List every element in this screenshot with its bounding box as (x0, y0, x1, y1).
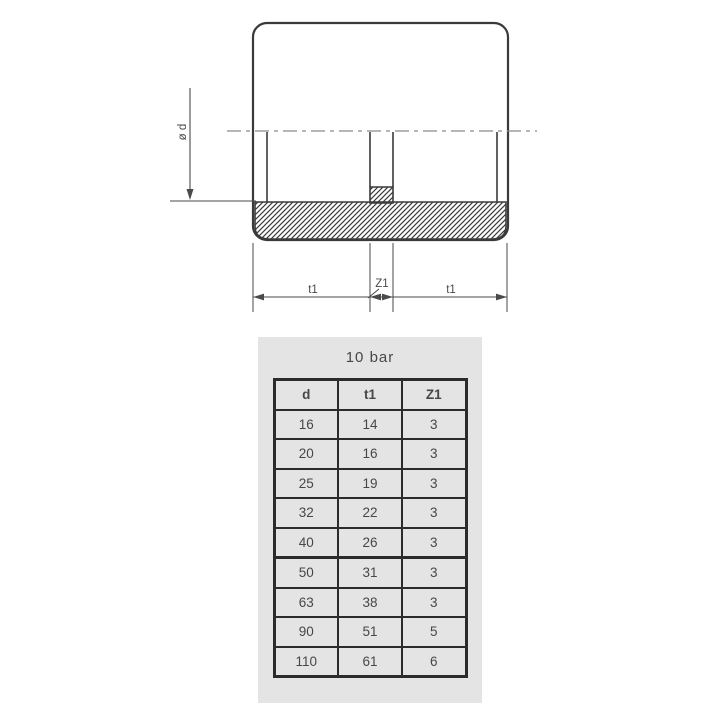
cell-z1: 3 (402, 528, 466, 558)
table-row: 20 16 3 (274, 439, 466, 469)
cell-z1: 6 (402, 647, 466, 677)
cell-d: 25 (274, 469, 338, 499)
cell-t1: 26 (338, 528, 402, 558)
cell-t1: 16 (338, 439, 402, 469)
diameter-dimension: ø d (170, 88, 256, 201)
cell-d: 90 (274, 617, 338, 647)
cell-t1: 31 (338, 558, 402, 588)
table-row: 50 31 3 (274, 558, 466, 588)
cell-t1: 61 (338, 647, 402, 677)
section-hatch-band (255, 202, 506, 239)
col-header-d: d (274, 380, 338, 410)
cell-d: 20 (274, 439, 338, 469)
col-header-z1: Z1 (402, 380, 466, 410)
cell-z1: 3 (402, 439, 466, 469)
cell-d: 32 (274, 498, 338, 528)
table-row: 63 38 3 (274, 588, 466, 618)
spec-panel: 10 bar d t1 Z1 16 14 3 20 16 3 (258, 337, 482, 703)
dim-arrow-midright-icon (382, 294, 393, 301)
page: ø d t1 Z1 t1 10 bar d t1 (0, 0, 720, 720)
cell-d: 63 (274, 588, 338, 618)
cell-t1: 38 (338, 588, 402, 618)
table-row: 32 22 3 (274, 498, 466, 528)
cell-d: 40 (274, 528, 338, 558)
diameter-label: ø d (177, 124, 189, 141)
table-row: 110 61 6 (274, 647, 466, 677)
length-dimensions: t1 Z1 t1 (253, 243, 507, 312)
cell-d: 16 (274, 410, 338, 440)
table-row: 40 26 3 (274, 528, 466, 558)
cell-z1: 3 (402, 498, 466, 528)
pressure-rating-title: 10 bar (258, 337, 482, 378)
table-row: 25 19 3 (274, 469, 466, 499)
dimension-table: d t1 Z1 16 14 3 20 16 3 25 19 (273, 378, 468, 678)
cell-d: 110 (274, 647, 338, 677)
dim-arrow-left-icon (253, 294, 264, 301)
t1-right-label: t1 (446, 284, 456, 296)
cell-z1: 5 (402, 617, 466, 647)
coupling-drawing: ø d t1 Z1 t1 (0, 0, 720, 330)
cell-t1: 51 (338, 617, 402, 647)
t1-left-label: t1 (308, 284, 318, 296)
col-header-t1: t1 (338, 380, 402, 410)
diameter-arrow-icon (187, 189, 194, 200)
table-header-row: d t1 Z1 (274, 380, 466, 410)
cell-t1: 19 (338, 469, 402, 499)
cell-t1: 14 (338, 410, 402, 440)
cell-z1: 3 (402, 588, 466, 618)
cell-t1: 22 (338, 498, 402, 528)
cell-d: 50 (274, 558, 338, 588)
cell-z1: 3 (402, 410, 466, 440)
cell-z1: 3 (402, 558, 466, 588)
z1-label: Z1 (375, 278, 388, 290)
cell-z1: 3 (402, 469, 466, 499)
dim-arrow-right-icon (496, 294, 507, 301)
center-stop (370, 187, 393, 203)
table-row: 90 51 5 (274, 617, 466, 647)
table-row: 16 14 3 (274, 410, 466, 440)
